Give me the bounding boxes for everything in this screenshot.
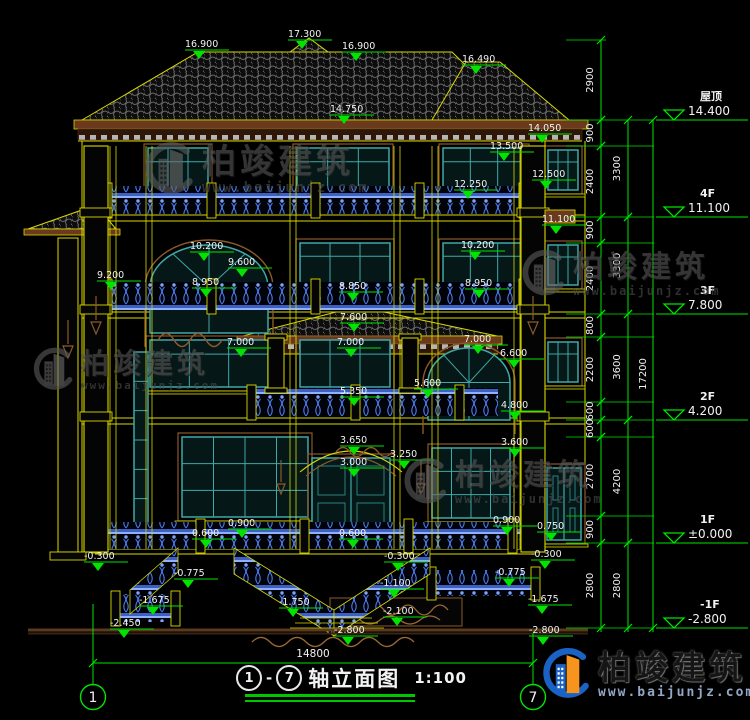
- window: [541, 338, 585, 389]
- eave-fascia: [74, 120, 588, 129]
- left-wing-pier: [50, 238, 86, 560]
- newel-post: [311, 279, 320, 314]
- marker-value: 0.600: [339, 528, 366, 539]
- overall-dimension-value: 14800: [296, 648, 329, 660]
- marker-value: 16.900: [342, 41, 375, 52]
- dimension-value: 2800: [585, 573, 596, 598]
- corner-pier: [80, 146, 112, 552]
- dentil-band: [78, 129, 582, 140]
- porch-roof: [243, 312, 497, 336]
- porch-column: [265, 334, 287, 393]
- dimension-value: 2200: [585, 357, 596, 382]
- marker-value: -0.300: [531, 549, 562, 560]
- window: [175, 433, 315, 524]
- axis-bubble: 7: [521, 685, 546, 710]
- level-marker: 2F4.200: [656, 390, 748, 420]
- marker-triangle: [182, 580, 194, 588]
- level-value: 14.400: [688, 104, 730, 118]
- drawing-title: 1 - 7 轴立面图 1:100: [236, 663, 467, 693]
- marker-value: -2.100: [383, 606, 414, 617]
- window-frame: [548, 342, 578, 382]
- level-value: 4.200: [688, 404, 722, 418]
- marker-value: 7.000: [464, 334, 491, 345]
- marker-value: -2.800: [334, 625, 365, 636]
- window: [541, 241, 585, 292]
- marker-value: 0.900: [228, 518, 255, 529]
- title-underline: [245, 694, 415, 702]
- marker-value: -1.675: [528, 594, 559, 605]
- marker-value: 0.750: [537, 521, 564, 532]
- dimension-value: 3600: [612, 354, 623, 379]
- dimension-value: 600: [585, 401, 596, 420]
- marker-triangle: [509, 449, 521, 457]
- marker-value: 5.350: [340, 386, 367, 397]
- dimension-value: 17200: [638, 358, 649, 390]
- marker-value: 11.100: [542, 214, 575, 225]
- window: [425, 444, 517, 525]
- dimension-value: 900: [585, 123, 596, 142]
- marker-value: -2.450: [110, 618, 141, 629]
- dimension-value: 2400: [585, 266, 596, 291]
- balustrade: [92, 519, 535, 553]
- level-triangle: [664, 618, 684, 628]
- dimension-value: 800: [585, 316, 596, 335]
- dimension-value: 900: [585, 220, 596, 239]
- dimension-value: 2400: [585, 169, 596, 194]
- level-name: 1F: [700, 513, 715, 526]
- elevation-drawing: 2900900240090024008002200600600270090028…: [0, 0, 750, 720]
- newel-post: [171, 591, 180, 626]
- marker-value: 17.300: [288, 29, 321, 40]
- marker-value: 6.600: [500, 348, 527, 359]
- marker-value: 13.500: [490, 141, 523, 152]
- elevation-marker: -1.675: [528, 594, 572, 614]
- ornament-base-band: [252, 638, 414, 647]
- newel-post: [455, 385, 464, 420]
- marker-value: 4.800: [501, 400, 528, 411]
- wall-pendant: [417, 460, 425, 494]
- level-value: ±0.000: [688, 527, 732, 541]
- newel-post: [404, 519, 413, 553]
- dimension-value: 900: [585, 520, 596, 539]
- level-marker: 3F7.800: [656, 284, 748, 314]
- level-triangle: [664, 304, 684, 314]
- dimension-value: 2800: [612, 573, 623, 598]
- axis-bubble: 1: [81, 685, 106, 710]
- marker-value: -0.300: [384, 551, 415, 562]
- marker-value: -2.800: [529, 625, 560, 636]
- newel-post: [415, 279, 424, 314]
- newel-post: [300, 519, 309, 553]
- title-text: 轴立面图: [308, 663, 400, 693]
- axis-bubble-label: 7: [529, 690, 538, 706]
- marker-value: 12.250: [454, 179, 487, 190]
- newel-post: [311, 183, 320, 218]
- marker-value: 3.650: [340, 435, 367, 446]
- title-axis-start-bubble: 1: [236, 665, 262, 691]
- rect: [84, 146, 108, 552]
- marker-value: -1.675: [139, 595, 170, 606]
- marker-value: 3.250: [390, 449, 417, 460]
- marker-value: 12.500: [532, 169, 565, 180]
- marker-value: -1.750: [279, 597, 310, 608]
- pier-base: [50, 552, 86, 560]
- marker-triangle: [537, 637, 549, 645]
- level-value: 11.100: [688, 201, 730, 215]
- marker-value: 7.000: [227, 337, 254, 348]
- level-value: 7.800: [688, 298, 722, 312]
- newel-post: [247, 385, 256, 420]
- marker-value: 3.000: [340, 457, 367, 468]
- marker-value: 8.850: [339, 281, 366, 292]
- marker-value: 9.600: [228, 257, 255, 268]
- marker-value: -0.775: [495, 567, 526, 578]
- column-shaft: [268, 338, 284, 388]
- dimension-value: 2700: [585, 464, 596, 489]
- marker-value: 8.950: [465, 278, 492, 289]
- balusters: [97, 522, 535, 549]
- ornament-keystone: [336, 448, 392, 457]
- level-name: 3F: [700, 284, 715, 297]
- marker-value: 0.600: [192, 528, 219, 539]
- title-scale: 1:100: [414, 669, 467, 687]
- newel-post: [415, 183, 424, 218]
- elevation-marker: -0.300: [531, 549, 575, 569]
- marker-value: 16.900: [185, 39, 218, 50]
- marker-value: -1.100: [380, 578, 411, 589]
- dimension-value: 4200: [612, 469, 623, 494]
- window-frame: [548, 245, 578, 285]
- dimension-value: 3300: [612, 253, 623, 278]
- elevation-marker: 3.250: [390, 449, 434, 469]
- column-base: [265, 388, 287, 393]
- level-marker: 屋顶14.400: [656, 90, 748, 120]
- level-name: -1F: [700, 598, 720, 611]
- cad-elevation-screenshot: { "colors":{"green":"#00e400","yellow":"…: [0, 0, 750, 720]
- elevation-marker: -0.775: [174, 568, 218, 588]
- title-axis-end-bubble: 7: [276, 665, 302, 691]
- marker-value: -0.775: [174, 568, 205, 579]
- marker-value: 14.050: [528, 123, 561, 134]
- marker-value: 7.000: [337, 337, 364, 348]
- marker-value: 14.750: [330, 104, 363, 115]
- marker-value: 3.600: [501, 437, 528, 448]
- pier-cap: [80, 208, 112, 217]
- pier-cap: [517, 412, 549, 421]
- window-sill: [540, 544, 588, 547]
- level-marker: 1F±0.000: [656, 513, 748, 543]
- level-value: -2.800: [688, 612, 727, 626]
- marker-triangle: [539, 561, 551, 569]
- marker-triangle: [550, 226, 562, 234]
- window-sill: [541, 194, 585, 197]
- marker-value: 9.200: [97, 270, 124, 281]
- marker-value: 8.950: [192, 277, 219, 288]
- marker-value: 16.490: [462, 54, 495, 65]
- dimension-value: 600: [585, 419, 596, 438]
- rect: [58, 238, 78, 552]
- window-sill: [541, 289, 585, 292]
- level-triangle: [664, 533, 684, 543]
- marker-value: 10.200: [190, 241, 223, 252]
- level-triangle: [664, 110, 684, 120]
- level-marker: -1F-2.800: [656, 598, 748, 628]
- marker-triangle: [92, 563, 104, 571]
- marker-triangle: [536, 606, 548, 614]
- level-marker: 4F11.100: [656, 187, 748, 217]
- title-separator: -: [266, 669, 272, 687]
- marker-value: 5.600: [414, 378, 441, 389]
- window-sill: [541, 386, 585, 389]
- marker-value: 7.600: [340, 312, 367, 323]
- dimension-value: 3300: [612, 156, 623, 181]
- newel-post: [207, 183, 216, 218]
- marker-value: 10.200: [461, 240, 494, 251]
- marker-value: -0.300: [84, 551, 115, 562]
- dimension-value: 2900: [585, 67, 596, 92]
- marker-value: 0.900: [493, 515, 520, 526]
- level-name: 2F: [700, 390, 715, 403]
- pier-cap: [80, 412, 112, 421]
- level-name: 4F: [700, 187, 715, 200]
- level-triangle: [664, 207, 684, 217]
- axis-bubble-label: 1: [89, 690, 98, 706]
- level-name: 屋顶: [700, 90, 722, 103]
- level-triangle: [664, 410, 684, 420]
